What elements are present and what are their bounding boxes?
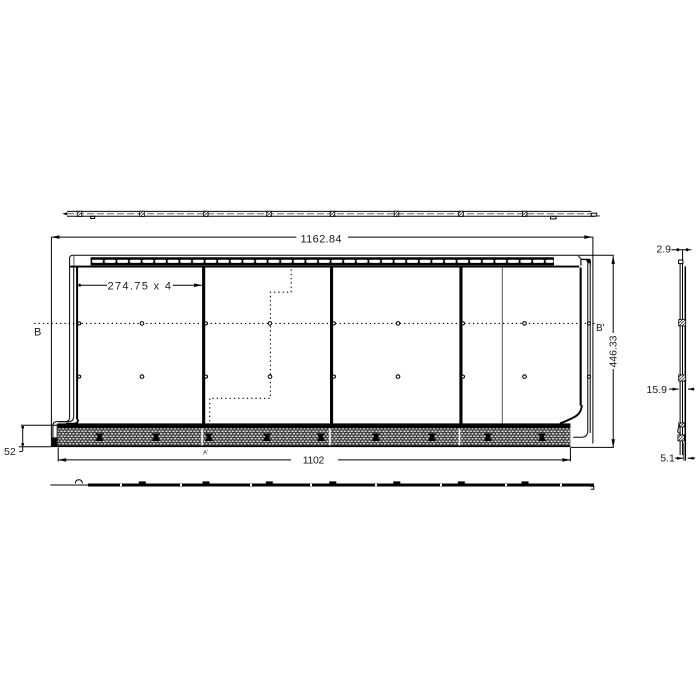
svg-text:15.9: 15.9	[647, 384, 668, 396]
svg-text:1102: 1102	[303, 454, 325, 466]
svg-text:B: B	[34, 327, 41, 339]
svg-text:A': A'	[203, 451, 208, 457]
svg-text:1162.84: 1162.84	[301, 233, 342, 245]
svg-text:446.33: 446.33	[608, 335, 620, 367]
svg-text:5.1: 5.1	[660, 453, 675, 465]
svg-text:2.9: 2.9	[656, 244, 671, 256]
svg-text:B': B'	[596, 323, 605, 334]
svg-text:52: 52	[4, 446, 16, 458]
svg-text:274.75 x 4: 274.75 x 4	[108, 281, 172, 293]
